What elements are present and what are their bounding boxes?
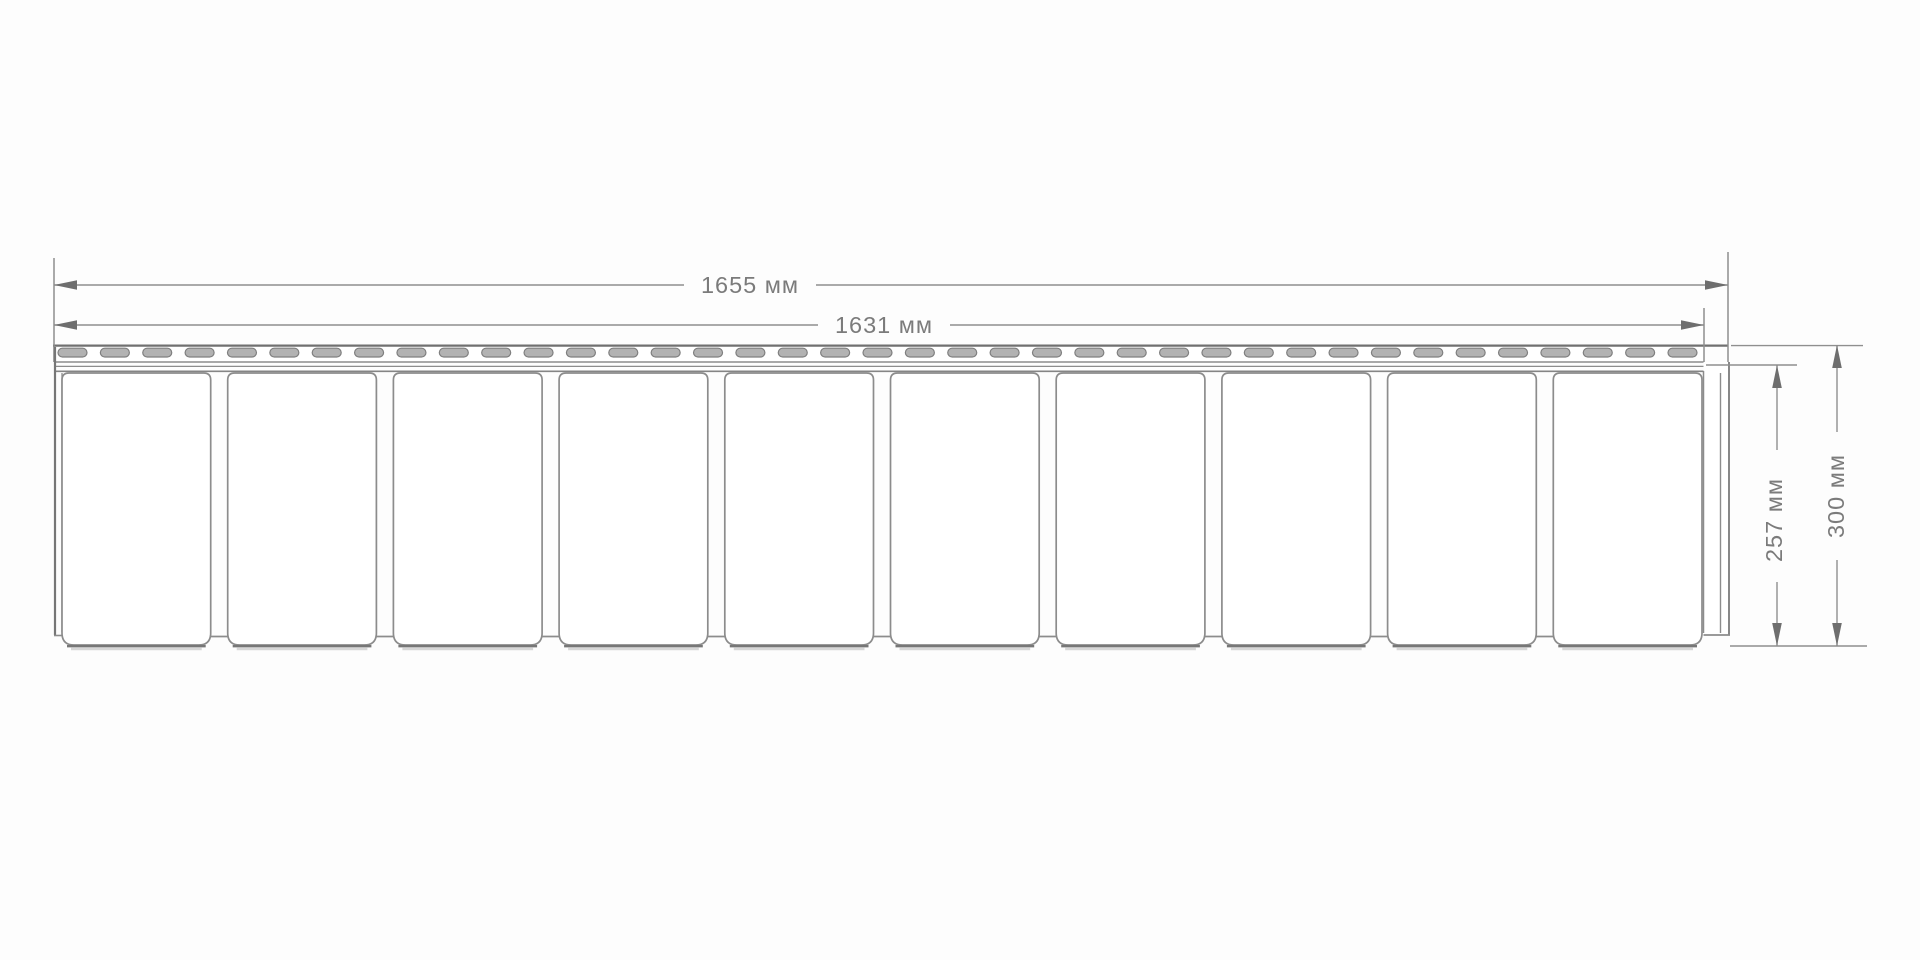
dimension-label-total-width: 1655 мм — [701, 272, 799, 298]
panel-segment — [1388, 373, 1537, 645]
nail-slot — [948, 348, 977, 357]
nail-slot — [990, 348, 1019, 357]
nail-slot — [270, 348, 299, 357]
nail-slot — [482, 348, 511, 357]
panel-technical-drawing: 1655 мм 1631 мм 257 мм 300 мм — [0, 0, 1920, 960]
panel-segment — [62, 373, 211, 645]
panel-segment — [725, 373, 874, 645]
nail-slot — [694, 348, 723, 357]
nail-slot — [1329, 348, 1358, 357]
dimension-label-hem-width: 1631 мм — [835, 312, 933, 338]
nail-slot — [1117, 348, 1146, 357]
nail-slot — [1541, 348, 1570, 357]
nail-slot — [100, 348, 129, 357]
nail-slot — [905, 348, 934, 357]
panel-segment — [1056, 373, 1205, 645]
nail-slot — [863, 348, 892, 357]
panel-segment — [1222, 373, 1371, 645]
nail-slot — [1583, 348, 1612, 357]
nail-slot — [778, 348, 807, 357]
nail-slot — [1499, 348, 1528, 357]
nail-slot — [1244, 348, 1273, 357]
nail-slot — [1075, 348, 1104, 357]
nail-slot — [227, 348, 256, 357]
dimension-label-face-height: 257 мм — [1761, 478, 1787, 562]
nail-slot — [1626, 348, 1655, 357]
dimension-label-total-height: 300 мм — [1823, 454, 1849, 538]
nail-slot — [439, 348, 468, 357]
nail-slot — [355, 348, 384, 357]
nail-slot — [1414, 348, 1443, 357]
nail-slot — [524, 348, 553, 357]
nail-slot — [312, 348, 341, 357]
nail-slot — [1287, 348, 1316, 357]
nail-slot — [1456, 348, 1485, 357]
nail-slot — [1202, 348, 1231, 357]
panel-segment — [1553, 373, 1702, 645]
nail-slot — [821, 348, 850, 357]
nail-slot — [397, 348, 426, 357]
nail-slot — [143, 348, 172, 357]
nail-slot — [58, 348, 87, 357]
panel-segment — [393, 373, 542, 645]
nail-slot — [1160, 348, 1189, 357]
nail-slot — [736, 348, 765, 357]
nail-slot — [1371, 348, 1400, 357]
panel-segment — [891, 373, 1040, 645]
end-cap-face — [1704, 362, 1729, 635]
nail-slot — [651, 348, 680, 357]
nail-slot — [566, 348, 595, 357]
panel-segment — [228, 373, 377, 645]
nail-slot — [185, 348, 214, 357]
nail-slot — [1032, 348, 1061, 357]
nail-slot — [609, 348, 638, 357]
panel-segment — [559, 373, 708, 645]
panel-right-end-cap — [1704, 362, 1731, 635]
nail-slot — [1668, 348, 1697, 357]
